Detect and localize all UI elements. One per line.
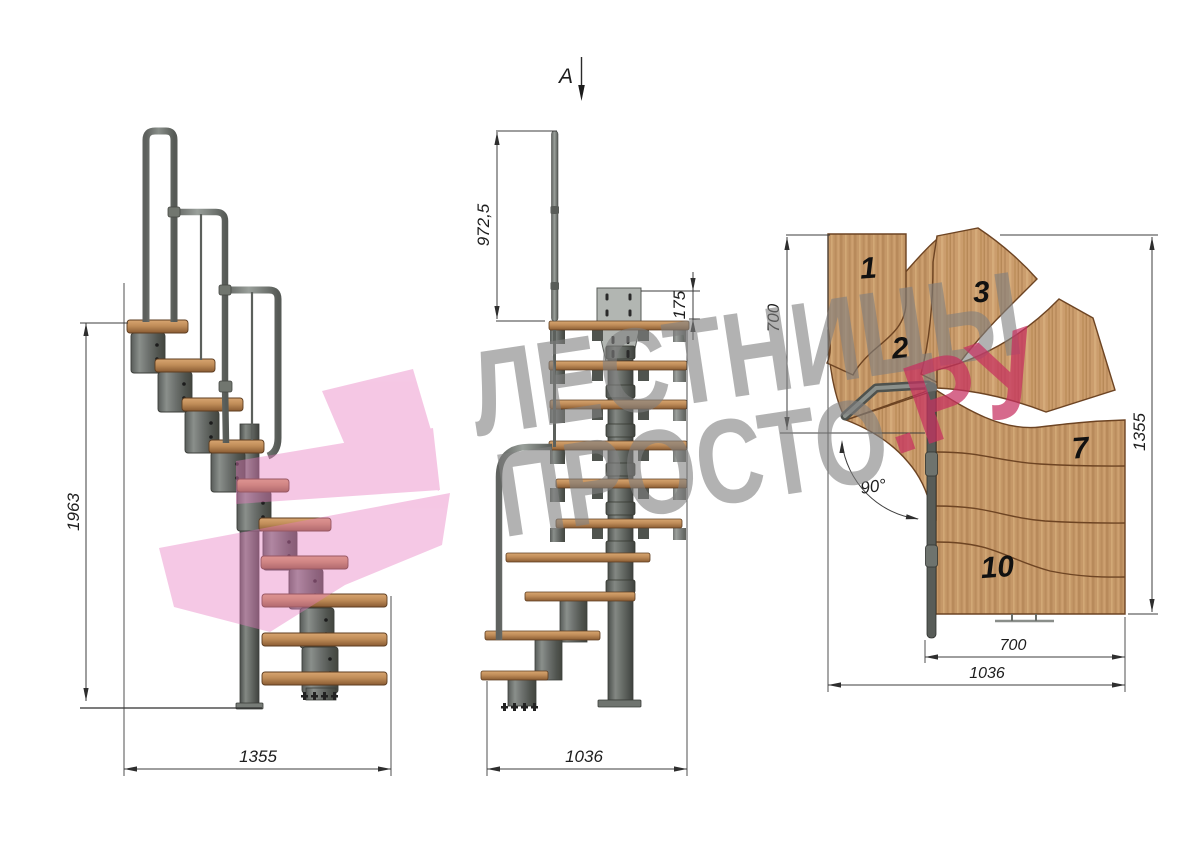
svg-text:1036: 1036 (969, 665, 1005, 682)
svg-text:1963: 1963 (64, 493, 83, 531)
svg-text:1355: 1355 (239, 747, 277, 766)
svg-text:1036: 1036 (565, 747, 603, 766)
svg-text:10: 10 (980, 550, 1016, 585)
svg-text:1355: 1355 (1130, 413, 1149, 451)
svg-text:972,5: 972,5 (474, 203, 493, 246)
svg-text:A: A (557, 65, 573, 88)
svg-text:700: 700 (1000, 637, 1027, 654)
